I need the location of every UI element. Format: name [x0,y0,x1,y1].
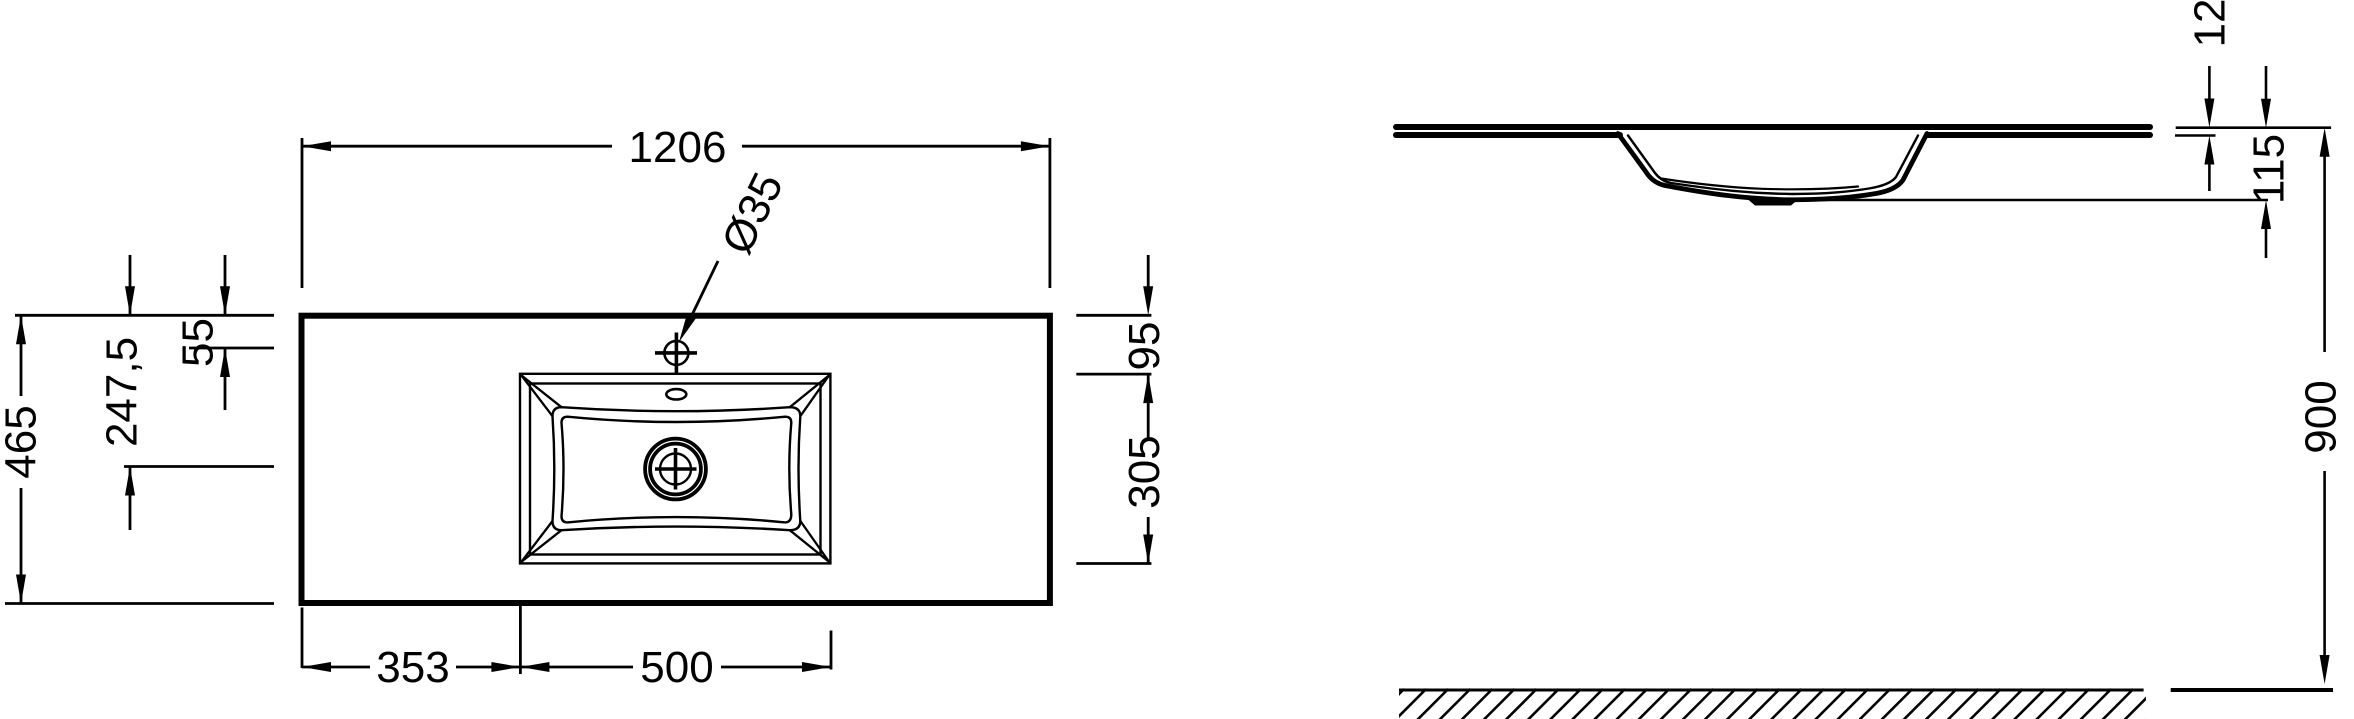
svg-text:247,5: 247,5 [98,337,147,447]
svg-text:465: 465 [0,405,46,478]
svg-text:900: 900 [2297,380,2346,453]
svg-text:55: 55 [174,318,223,367]
svg-text:353: 353 [376,643,449,692]
svg-text:1206: 1206 [629,123,727,172]
svg-text:12: 12 [2186,0,2235,47]
svg-text:95: 95 [1120,322,1169,371]
svg-text:305: 305 [1120,435,1169,508]
svg-text:115: 115 [2245,134,2294,204]
svg-text:500: 500 [640,643,713,692]
